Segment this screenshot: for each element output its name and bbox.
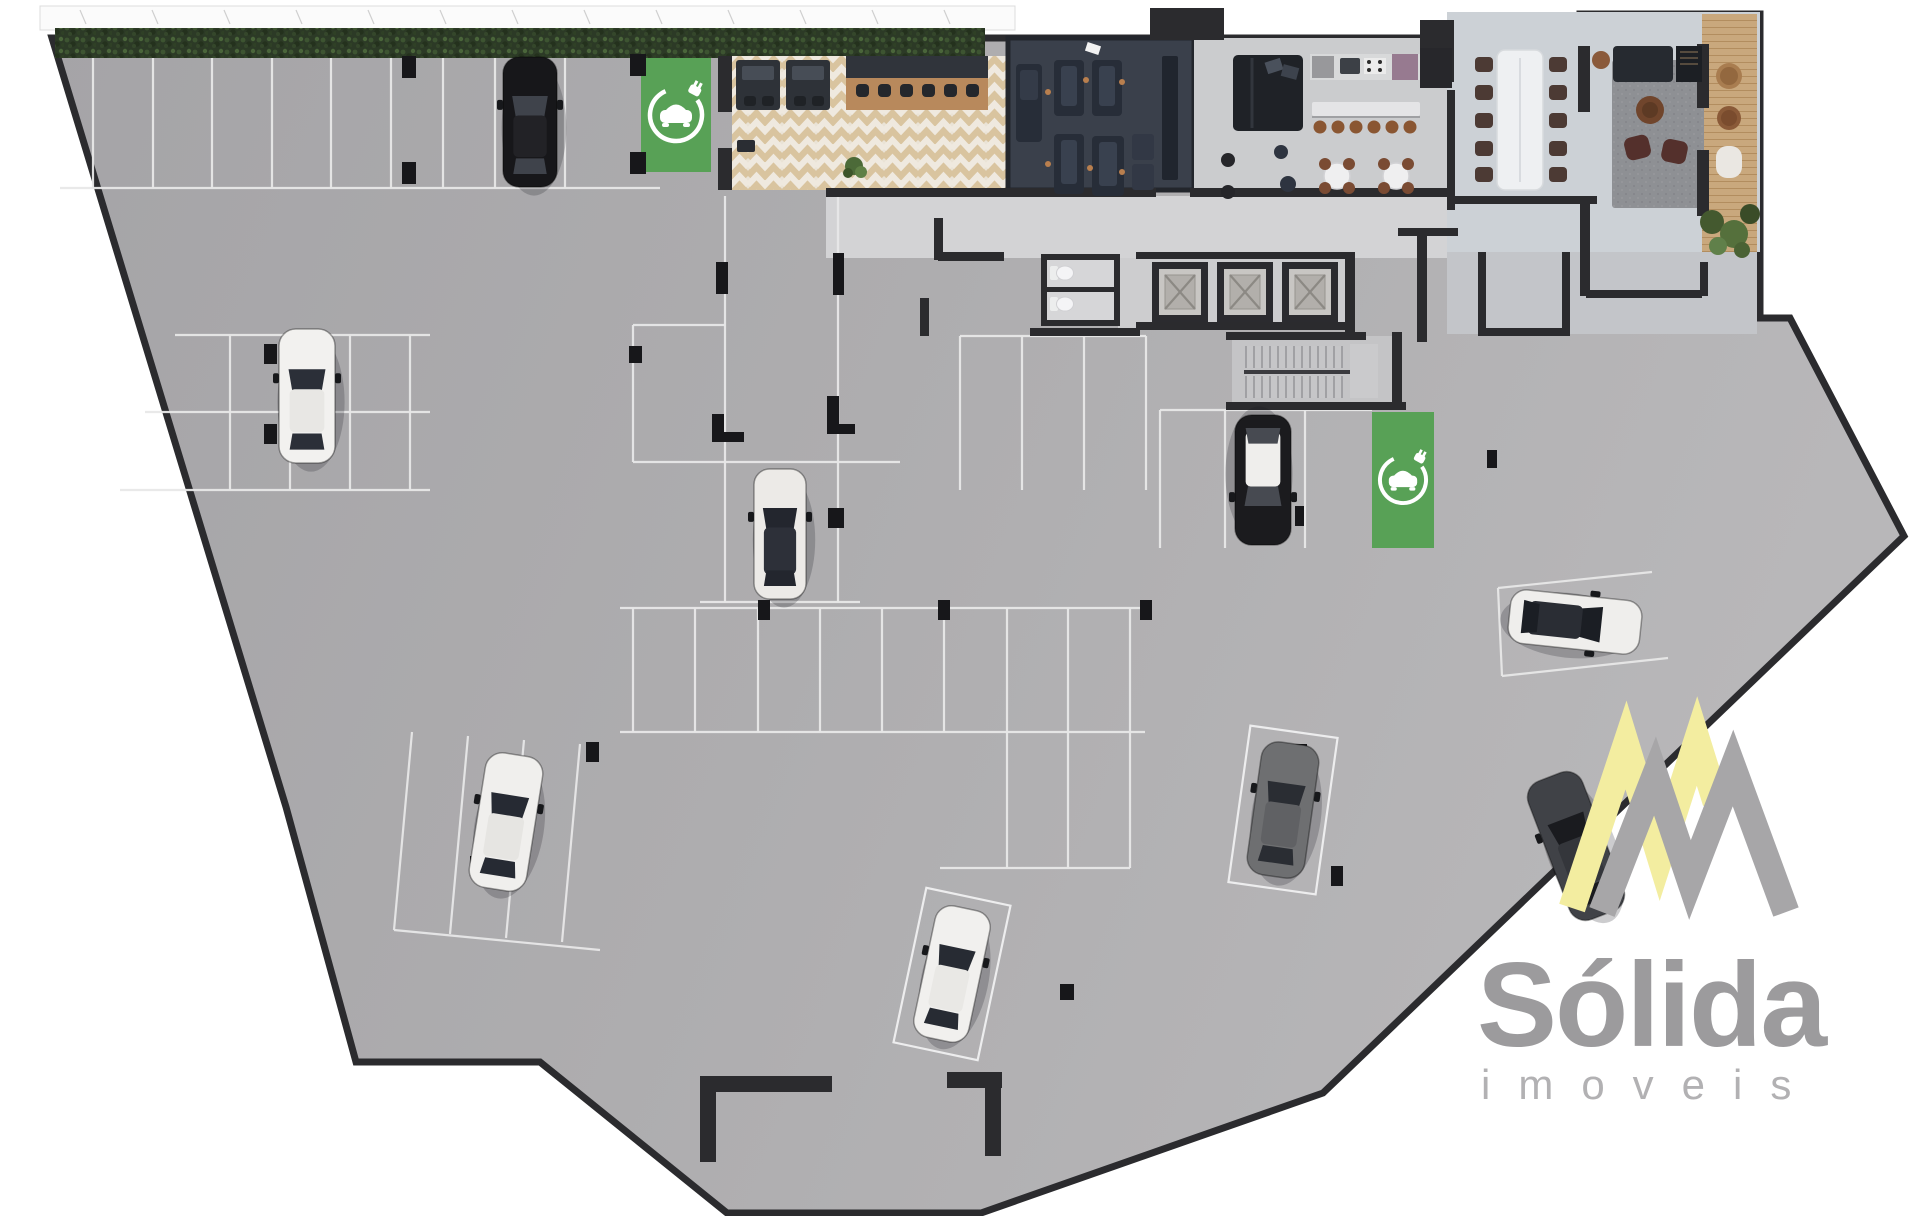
car-white-sedan	[273, 329, 345, 472]
dining-chair	[1475, 113, 1493, 128]
dining-chair	[1549, 57, 1567, 72]
office-chair	[762, 96, 774, 106]
kitchen-sink	[1340, 58, 1360, 74]
stool-dark	[1221, 153, 1235, 167]
dining-chair	[1549, 141, 1567, 156]
car-roof	[482, 812, 524, 861]
car-mirror	[497, 100, 503, 110]
office-chair	[744, 96, 756, 106]
cafe-chair	[1319, 182, 1331, 194]
cafe-chair	[1402, 158, 1414, 170]
amenity-corridor	[826, 196, 1447, 258]
bar-stool	[1404, 121, 1417, 134]
office-chair	[812, 96, 824, 106]
gym-bench-pad	[1099, 142, 1117, 186]
gym-bench-pad	[1099, 66, 1115, 106]
gym-machine-pad	[1020, 70, 1038, 100]
bar-stool	[1332, 121, 1345, 134]
gym-bench-pad	[1061, 140, 1077, 184]
side-table-round	[1592, 51, 1610, 69]
cafe-chair	[1402, 182, 1414, 194]
hedge	[55, 28, 985, 58]
kitchen-cabinet	[1392, 54, 1418, 80]
plant	[843, 168, 853, 178]
column	[586, 742, 599, 762]
kitchen-island	[1312, 102, 1420, 116]
column	[716, 262, 728, 294]
wall-segment	[920, 298, 929, 336]
dining-chair	[1475, 167, 1493, 182]
car-windshield	[289, 369, 326, 392]
car-mirror	[557, 100, 563, 110]
cafe-chair	[1378, 182, 1390, 194]
deck-pouf-top	[1721, 110, 1737, 126]
cafe-chair	[1378, 158, 1390, 170]
wall-segment	[1136, 252, 1352, 259]
wall-segment	[700, 1076, 832, 1092]
gym-knob	[1045, 161, 1051, 167]
car-windshield	[512, 96, 548, 118]
gym-knob	[1087, 165, 1093, 171]
column	[833, 253, 844, 295]
car-roof	[290, 389, 325, 432]
bar-stool	[1350, 121, 1363, 134]
plant	[1740, 204, 1760, 224]
lounge-sofa	[1613, 46, 1673, 82]
column	[827, 424, 855, 434]
wall-segment	[985, 1072, 1001, 1156]
car-black-sedan	[497, 57, 566, 196]
column	[1060, 984, 1074, 1000]
bar-stool	[1368, 121, 1381, 134]
plant	[1709, 237, 1727, 255]
watermark-brand: Sólida	[1477, 938, 1828, 1072]
car-roof	[764, 528, 796, 575]
counter-stool	[966, 84, 979, 97]
dining-chair	[1549, 113, 1567, 128]
counter-stool	[878, 84, 891, 97]
kitchen-unit	[1312, 56, 1334, 78]
wall-segment	[718, 56, 732, 112]
wall-segment	[1700, 262, 1708, 296]
counter-stool	[900, 84, 913, 97]
column	[402, 162, 416, 184]
plant	[855, 166, 867, 178]
wall-segment	[1226, 332, 1366, 340]
office-chair	[794, 96, 806, 106]
car-mirror	[806, 512, 812, 522]
dining-chair	[1549, 167, 1567, 182]
column	[1140, 600, 1152, 620]
wall-segment	[1392, 332, 1402, 410]
car-mirror	[1590, 590, 1601, 597]
gym-knob	[1045, 89, 1051, 95]
car-rear-window	[290, 434, 325, 450]
dining-chair	[1475, 85, 1493, 100]
bar-stool	[1386, 121, 1399, 134]
car-mirror	[1291, 492, 1297, 502]
watermark-subtitle: imoveis	[1481, 1061, 1819, 1108]
car-rear-window	[513, 158, 546, 174]
car-roof	[1260, 801, 1302, 848]
fridge	[1420, 48, 1452, 88]
column	[758, 600, 770, 620]
elevator-shaft	[1282, 262, 1338, 322]
column	[630, 54, 646, 76]
elevator-shaft	[1217, 262, 1273, 322]
column	[264, 344, 277, 364]
stool-dark	[1221, 185, 1235, 199]
column	[712, 432, 744, 442]
column	[1487, 450, 1497, 468]
column	[1295, 506, 1304, 526]
gym-rack	[1162, 56, 1178, 180]
stove-burner	[1367, 68, 1371, 72]
car-rear-window	[1246, 428, 1281, 444]
dining-chair	[1475, 141, 1493, 156]
coffee-table-top	[1642, 102, 1658, 118]
wall-segment	[1417, 236, 1427, 342]
toilet	[1050, 297, 1074, 311]
wall-segment	[1447, 90, 1455, 210]
wall-segment	[1586, 290, 1702, 298]
gym-bench-pad	[1061, 66, 1077, 106]
wall-segment	[1030, 328, 1140, 336]
cafe-chair	[1319, 158, 1331, 170]
column	[1331, 866, 1343, 886]
pouf	[1280, 176, 1296, 192]
counter-stool	[944, 84, 957, 97]
plant	[1734, 242, 1750, 258]
wall-segment	[1697, 150, 1709, 216]
hedge-strip	[55, 28, 985, 58]
car-mirror	[335, 373, 341, 383]
counter-stool	[922, 84, 935, 97]
car-windshield	[763, 508, 797, 530]
cafe-chair	[1343, 158, 1355, 170]
car-mirror	[1229, 492, 1235, 502]
sidewalk	[40, 6, 1015, 30]
wall-segment	[1478, 328, 1570, 336]
stove-burner	[1378, 60, 1382, 64]
car-rear-window	[764, 570, 796, 586]
wall-segment	[1578, 46, 1590, 112]
lounge-rug	[1612, 60, 1704, 208]
deck-seat	[1716, 146, 1742, 178]
plan-layers: Sólidaimoveis	[40, 6, 1904, 1213]
car-dark-white-roof	[1225, 406, 1297, 545]
gym-mat	[1132, 134, 1154, 160]
gym-knob	[1083, 77, 1089, 83]
car-windshield	[1245, 484, 1282, 506]
wall-segment	[1345, 252, 1355, 332]
toilet	[1050, 266, 1074, 280]
wall-segment	[1150, 8, 1224, 40]
stove-burner	[1378, 68, 1382, 72]
dining-chair	[1549, 85, 1567, 100]
page: Sólidaimoveis	[0, 0, 1920, 1216]
pouf	[1274, 145, 1288, 159]
wall-segment	[1562, 252, 1570, 336]
column	[938, 600, 950, 620]
office-desk-top	[742, 66, 774, 80]
office-desk-top	[792, 66, 824, 80]
coworking-counter-top	[846, 56, 988, 78]
wall-segment	[1580, 196, 1590, 296]
wall-segment	[718, 148, 732, 190]
kitchen-stove	[1364, 58, 1386, 74]
column	[630, 152, 646, 174]
column	[828, 508, 844, 528]
column	[264, 424, 277, 444]
side-table	[737, 140, 755, 152]
wall-segment	[938, 252, 1004, 261]
sidewalk	[40, 6, 1015, 30]
stair-rail	[1244, 370, 1350, 374]
elevator-shaft	[1152, 262, 1208, 322]
gym-knob	[1119, 169, 1125, 175]
car-mirror	[748, 512, 754, 522]
car-mirror	[1584, 650, 1595, 657]
dining-chair	[1475, 57, 1493, 72]
wall-segment	[1447, 196, 1597, 204]
wall-segment	[1398, 228, 1458, 236]
car-roof	[513, 116, 546, 158]
stair-landing	[1350, 344, 1378, 398]
wall-segment	[1136, 322, 1352, 330]
gym-mat	[1132, 164, 1154, 190]
plant	[1700, 210, 1724, 234]
counter-stool	[856, 84, 869, 97]
floor-plan: Sólidaimoveis	[0, 0, 1920, 1216]
column	[629, 346, 642, 363]
gym-knob	[1119, 79, 1125, 85]
wall-segment	[1478, 252, 1486, 336]
column	[402, 56, 416, 78]
car-mirror	[273, 373, 279, 383]
bar-stool	[1314, 121, 1327, 134]
staircase	[1244, 344, 1378, 398]
cafe-chair	[1343, 182, 1355, 194]
deck-table-top	[1720, 67, 1738, 85]
stove-burner	[1367, 60, 1371, 64]
car-white-panoramic	[748, 469, 815, 608]
